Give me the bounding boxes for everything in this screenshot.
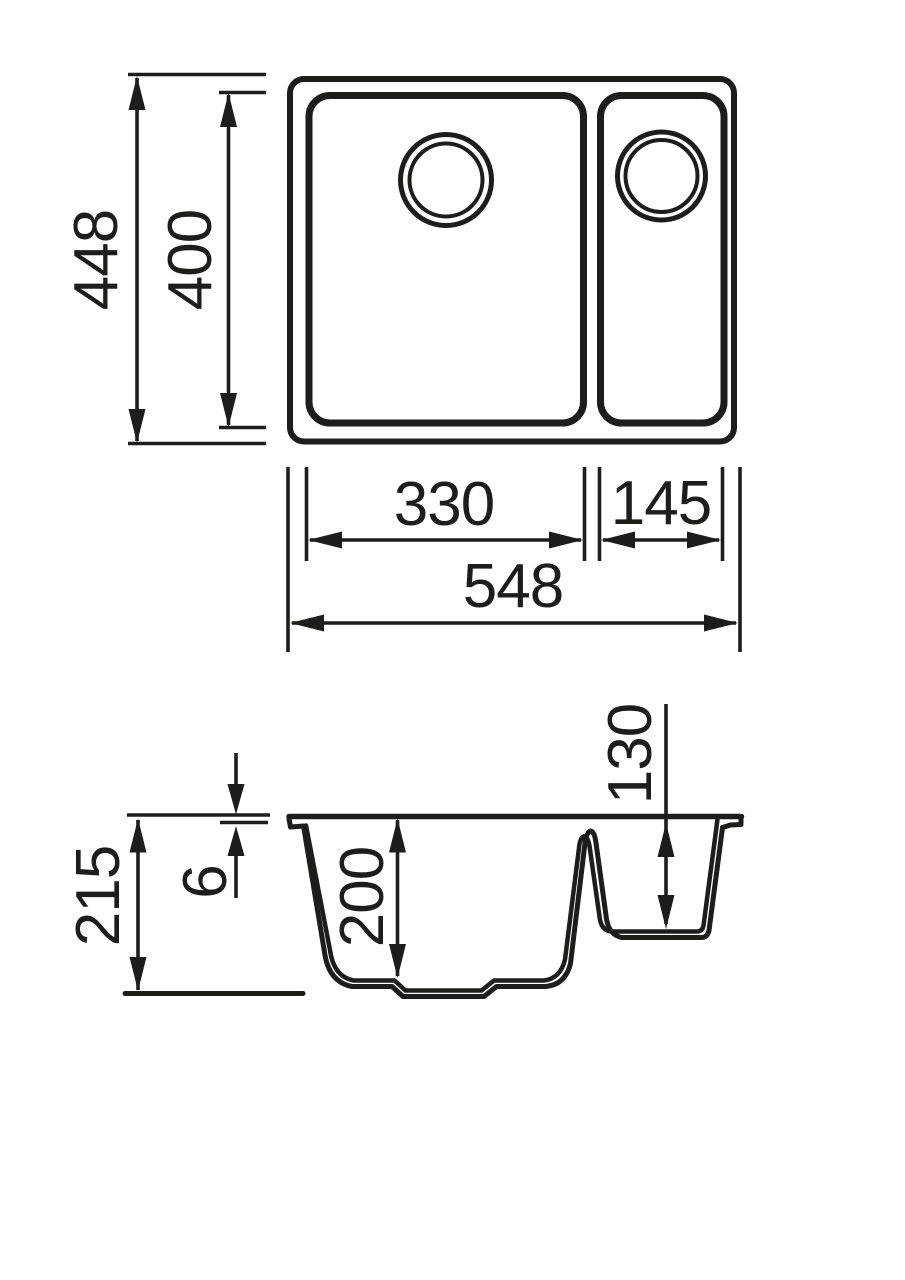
arrow-down-icon xyxy=(228,784,245,815)
arrow-down-icon xyxy=(220,393,237,427)
arrow-down-icon xyxy=(389,944,406,978)
dim-label-half-bowl-width: 145 xyxy=(611,469,711,538)
arrow-left-icon xyxy=(290,615,324,632)
half-bowl xyxy=(601,96,725,424)
dim-label-rim-thickness: 6 xyxy=(171,865,240,898)
dim-half-bowl-width: 145 xyxy=(601,469,721,549)
dim-rim-thickness: 6 xyxy=(171,753,268,899)
dim-label-overall-height: 215 xyxy=(64,846,133,946)
arrow-up-icon xyxy=(228,826,245,856)
main-bowl-drain xyxy=(401,135,492,226)
sink-technical-drawing-page: 448 400 330 145 548 xyxy=(0,0,905,1280)
dim-overall-width: 548 xyxy=(290,552,738,632)
arrow-left-icon xyxy=(308,532,342,549)
dim-label-main-bowl-depth: 200 xyxy=(328,847,397,947)
arrow-down-icon xyxy=(130,957,147,991)
arrow-down-icon xyxy=(658,895,675,929)
dim-label-bowl-depth: 400 xyxy=(156,210,225,310)
sink-technical-drawing: 448 400 330 145 548 xyxy=(0,0,905,1280)
plan-view xyxy=(290,79,734,442)
dim-label-overall-depth: 448 xyxy=(62,210,131,310)
dim-main-bowl-width: 330 xyxy=(308,470,583,549)
dim-bowl-depth: 400 xyxy=(156,93,266,428)
dim-overall-height: 215 xyxy=(64,819,147,992)
dim-label-half-bowl-depth: 130 xyxy=(596,704,665,804)
dim-label-overall-width: 548 xyxy=(463,552,563,621)
dim-label-main-bowl-width: 330 xyxy=(394,470,494,539)
arrow-right-icon xyxy=(549,532,583,549)
arrow-right-icon xyxy=(704,615,738,632)
arrow-down-icon xyxy=(129,409,146,443)
section-view xyxy=(125,815,742,997)
arrow-up-icon xyxy=(220,93,237,127)
half-bowl-drain xyxy=(618,132,706,220)
arrow-up-icon xyxy=(129,76,146,110)
arrow-up-icon xyxy=(658,823,675,857)
dim-main-bowl-depth: 200 xyxy=(328,819,406,979)
